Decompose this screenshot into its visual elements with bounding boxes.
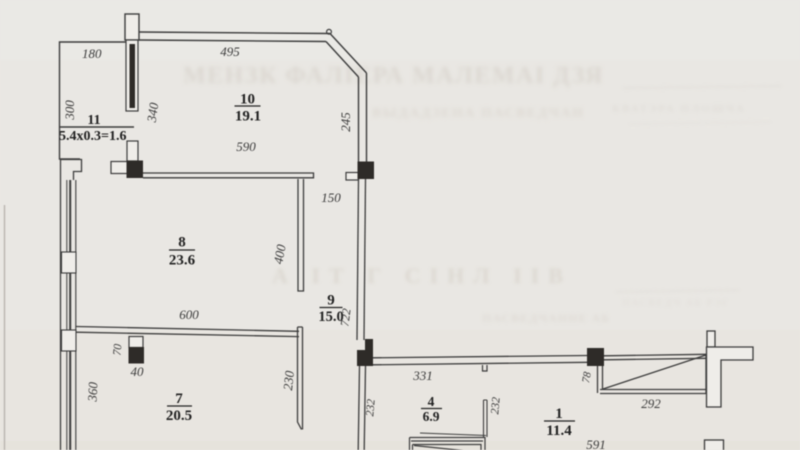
svg-text:23.6: 23.6	[169, 253, 196, 269]
svg-text:230: 230	[280, 370, 297, 391]
svg-text:9: 9	[327, 293, 335, 309]
svg-text:292: 292	[641, 396, 661, 411]
svg-text:232: 232	[489, 396, 502, 414]
svg-text:331: 331	[412, 368, 433, 383]
svg-text:495: 495	[220, 44, 240, 59]
svg-text:7: 7	[175, 391, 183, 407]
svg-text:11: 11	[87, 113, 100, 128]
svg-text:591: 591	[586, 437, 606, 450]
svg-text:600: 600	[179, 307, 199, 322]
svg-text:360: 360	[84, 381, 100, 403]
svg-text:19.1: 19.1	[235, 109, 261, 125]
svg-text:20.5: 20.5	[166, 408, 192, 424]
svg-text:10: 10	[240, 92, 255, 108]
svg-text:590: 590	[236, 139, 256, 154]
svg-text:150: 150	[321, 190, 341, 205]
svg-text:5.4х0.3=1.6: 5.4х0.3=1.6	[59, 129, 126, 144]
svg-text:6.9: 6.9	[423, 409, 440, 424]
svg-text:11.4: 11.4	[546, 423, 572, 439]
svg-text:232: 232	[364, 398, 377, 416]
svg-text:8: 8	[178, 235, 186, 251]
svg-text:1: 1	[555, 406, 563, 422]
svg-text:180: 180	[82, 46, 102, 61]
svg-text:70: 70	[112, 343, 125, 356]
svg-text:40: 40	[131, 364, 145, 379]
svg-text:300: 300	[62, 100, 77, 121]
svg-text:722: 722	[337, 308, 353, 328]
svg-text:МЕНЗК ФАЛІЕРА МАЛЕМАІ ДЗЯ: МЕНЗК ФАЛІЕРА МАЛЕМАІ ДЗЯ	[183, 63, 604, 89]
svg-text:КВАТЭРА ПЛОШЧА: КВАТЭРА ПЛОШЧА	[612, 103, 746, 115]
svg-text:ПАСВЕДЧАННЕ АБ: ПАСВЕДЧАННЕ АБ	[482, 311, 610, 325]
svg-text:ПАСВЕДЧ АБ РЭГ: ПАСВЕДЧ АБ РЭГ	[622, 298, 730, 309]
svg-text:А ІТ Г СІНЛ ІІВ: А ІТ Г СІНЛ ІІВ	[272, 263, 572, 288]
svg-text:245: 245	[338, 112, 353, 132]
svg-text:340: 340	[144, 101, 162, 124]
svg-text:ВЫДАДЗЕНА ПАСВЕДЧАН: ВЫДАДЗЕНА ПАСВЕДЧАН	[372, 106, 585, 121]
svg-text:4: 4	[428, 394, 435, 409]
